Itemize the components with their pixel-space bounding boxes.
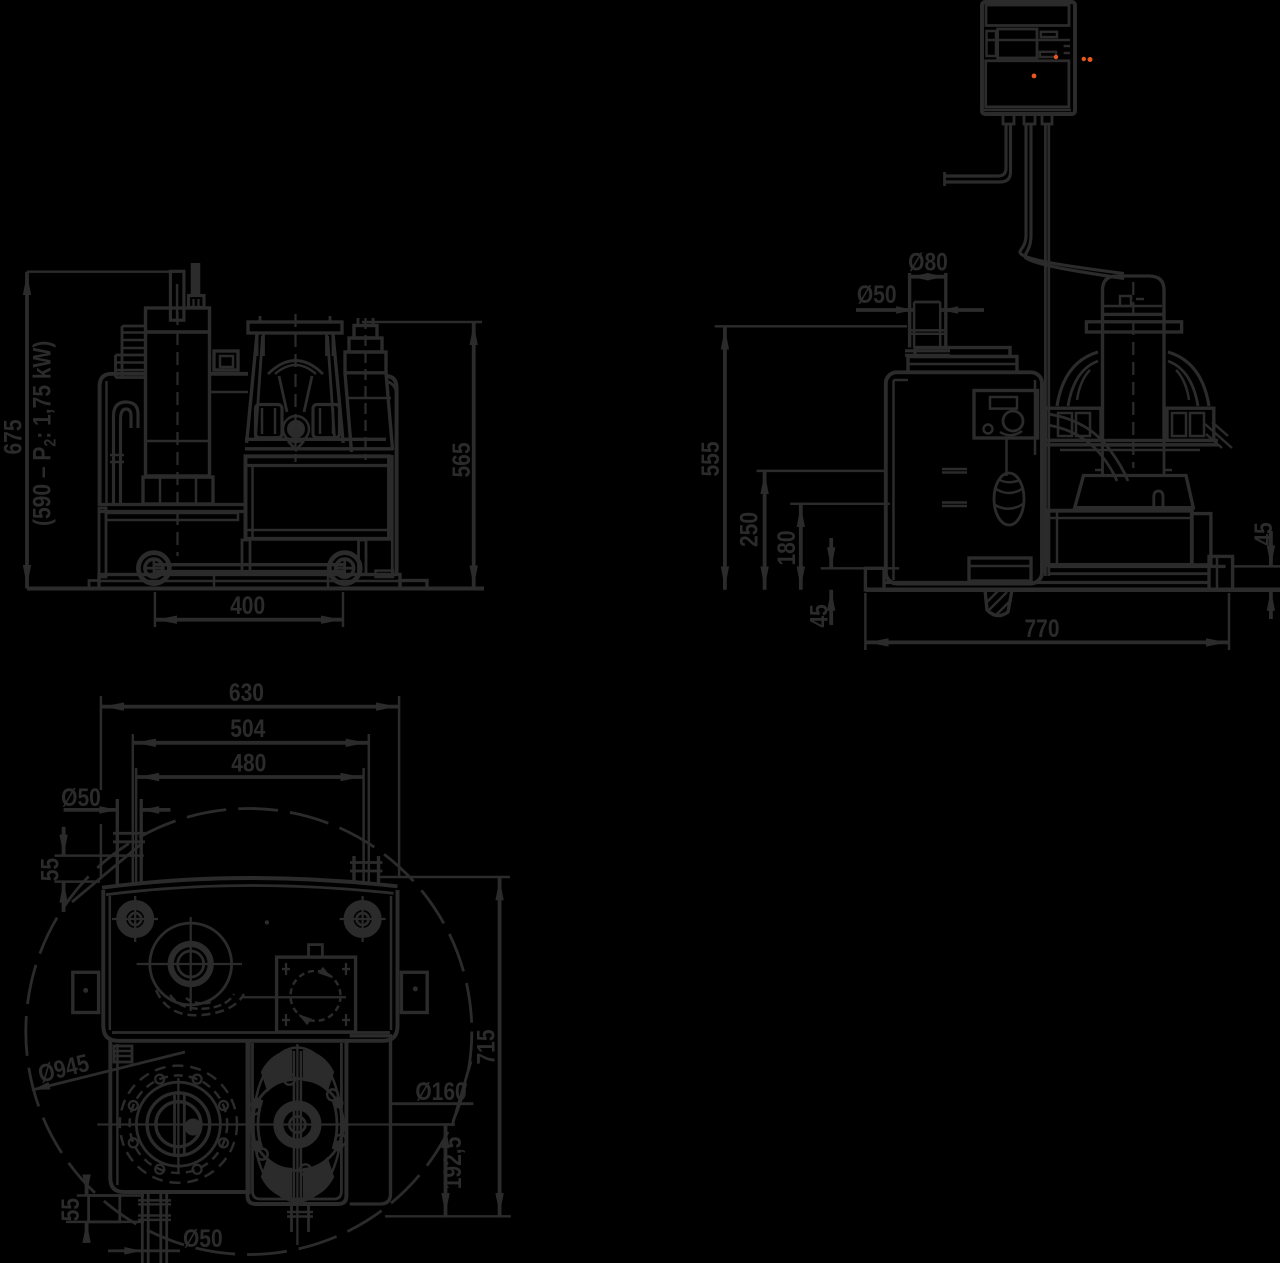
svg-text:565: 565 [447, 442, 475, 477]
svg-text:Ø80: Ø80 [908, 248, 948, 276]
svg-text:Ø50: Ø50 [857, 280, 897, 308]
svg-text:55: 55 [36, 858, 64, 881]
svg-text:180: 180 [772, 530, 800, 565]
svg-text:45: 45 [1249, 522, 1277, 545]
svg-text:480: 480 [231, 749, 266, 777]
svg-text:55: 55 [56, 1198, 84, 1221]
svg-text:45: 45 [805, 604, 833, 627]
svg-text:715: 715 [472, 1029, 500, 1064]
svg-text:630: 630 [229, 678, 264, 706]
svg-text:250: 250 [735, 512, 763, 547]
svg-text:(590 – P2: 1,75 kW): (590 – P2: 1,75 kW) [28, 341, 60, 526]
svg-text:400: 400 [230, 591, 265, 619]
svg-text:Ø50: Ø50 [183, 1224, 223, 1252]
svg-text:Ø50: Ø50 [61, 783, 101, 811]
svg-text:675: 675 [0, 419, 27, 454]
svg-text:770: 770 [1024, 614, 1059, 642]
svg-text:504: 504 [230, 714, 265, 742]
svg-text:555: 555 [696, 441, 724, 476]
